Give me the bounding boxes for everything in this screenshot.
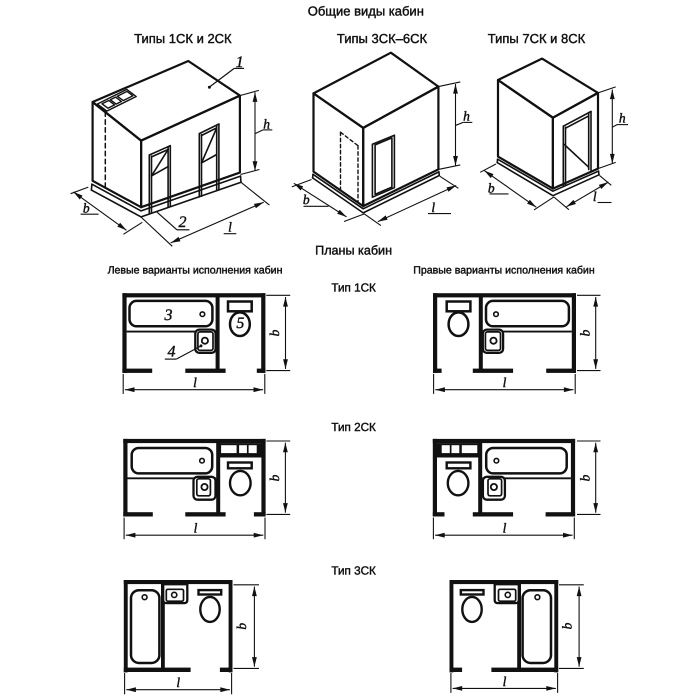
svg-text:b: b — [560, 622, 575, 629]
svg-text:Типы 1СК и 2СК: Типы 1СК и 2СК — [134, 31, 232, 46]
svg-text:b: b — [577, 329, 592, 336]
svg-text:2: 2 — [179, 214, 187, 231]
svg-text:b: b — [234, 623, 249, 630]
svg-text:l: l — [593, 189, 597, 204]
svg-text:l: l — [503, 375, 507, 390]
svg-text:h: h — [463, 109, 470, 124]
svg-text:Левые варианты исполнения каби: Левые варианты исполнения кабин — [108, 265, 283, 277]
svg-text:l: l — [503, 674, 507, 689]
svg-text:l: l — [228, 220, 232, 235]
svg-text:b: b — [577, 474, 592, 481]
svg-text:l: l — [503, 521, 507, 536]
svg-text:Типы 7СК и 8СК: Типы 7СК и 8СК — [488, 31, 586, 46]
svg-text:l: l — [176, 675, 180, 690]
svg-text:b: b — [488, 180, 495, 195]
svg-text:h: h — [619, 111, 626, 126]
svg-text:Тип 1СК: Тип 1СК — [331, 281, 376, 294]
svg-text:b: b — [303, 192, 310, 207]
svg-text:Тип 2СК: Тип 2СК — [331, 421, 376, 434]
svg-text:b: b — [267, 329, 282, 336]
svg-text:Тип 3СК: Тип 3СК — [331, 565, 376, 578]
svg-text:l: l — [194, 521, 198, 536]
svg-text:Общие виды кабин: Общие виды кабин — [308, 4, 424, 19]
svg-text:l: l — [193, 375, 197, 390]
svg-text:4: 4 — [168, 344, 176, 361]
svg-text:3: 3 — [164, 307, 173, 324]
svg-text:l: l — [431, 200, 435, 215]
svg-text:b: b — [267, 474, 282, 481]
svg-text:Типы 3СК–6СК: Типы 3СК–6СК — [337, 31, 428, 46]
svg-text:Планы кабин: Планы кабин — [315, 244, 392, 258]
svg-text:b: b — [83, 200, 90, 215]
svg-text:Правые варианты исполнения каб: Правые варианты исполнения кабин — [413, 265, 595, 277]
svg-text:5: 5 — [236, 315, 244, 332]
